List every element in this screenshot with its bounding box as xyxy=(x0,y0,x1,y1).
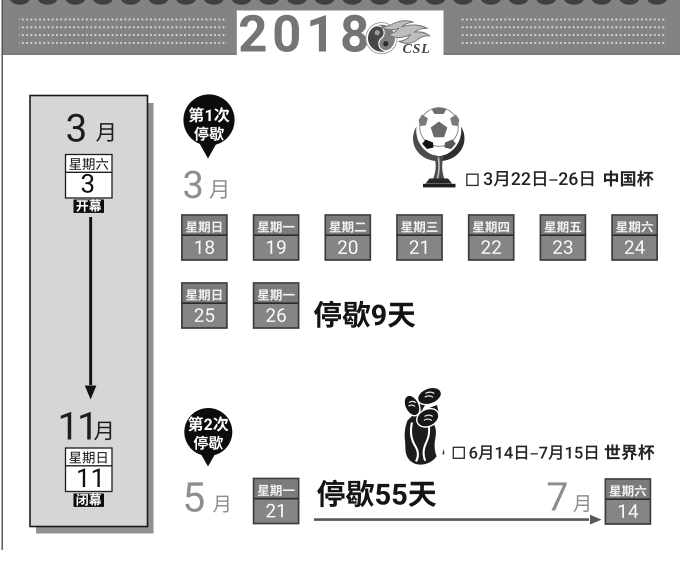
svg-text:CSL: CSL xyxy=(403,42,431,57)
